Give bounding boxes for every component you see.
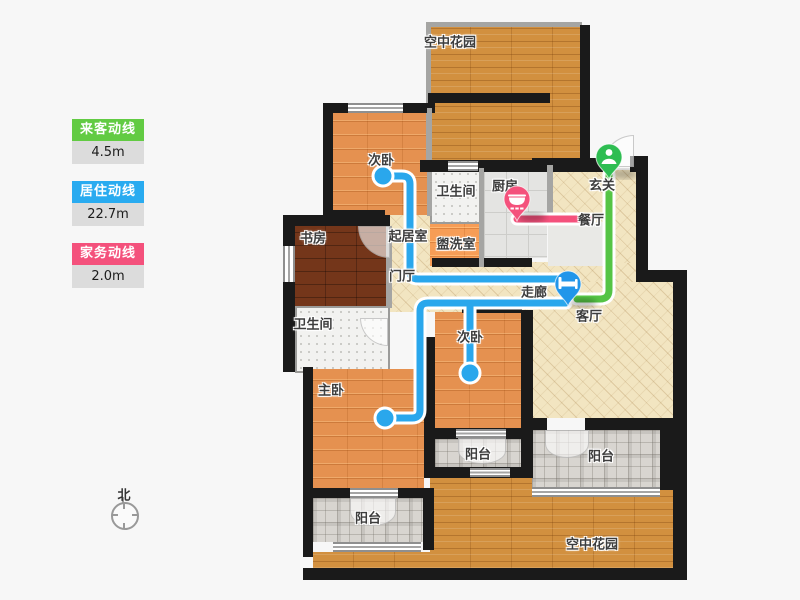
legend-living-title[interactable]: 居住动线 [72, 181, 144, 203]
room-label-balcony-center: 阳台 [465, 444, 491, 463]
wall [303, 568, 687, 580]
garden-rail-top [426, 22, 582, 27]
room-label-living: 客厅 [576, 306, 602, 325]
window [348, 103, 403, 113]
legend-item-visitor[interactable]: 来客动线 4.5m [72, 119, 144, 164]
wall [283, 215, 295, 372]
room-label-bedroom2-bottom: 次卧 [457, 327, 483, 346]
room-sky-garden-bottom-left [313, 552, 430, 568]
legend-visitor-title[interactable]: 来客动线 [72, 119, 144, 141]
legend-housework-title[interactable]: 家务动线 [72, 243, 144, 265]
room-label-study: 书房 [300, 228, 326, 247]
window [350, 488, 398, 498]
room-label-bath-left: 卫生间 [293, 314, 332, 333]
wall [547, 165, 553, 223]
room-label-balcony-right: 阳台 [588, 446, 614, 465]
legend-housework-value: 2.0m [72, 265, 144, 288]
entry-door-arc [602, 135, 634, 167]
dining-area-patch [548, 222, 606, 266]
room-label-garden-top: 空中花园 [424, 32, 476, 51]
legend-visitor-value: 4.5m [72, 141, 144, 164]
room-label-corridor: 走廊 [521, 282, 547, 301]
wall [285, 215, 390, 226]
wall [323, 103, 333, 225]
room-label-washroom: 盥洗室 [436, 234, 475, 253]
wall [462, 304, 522, 313]
room-label-balcony-left: 阳台 [355, 508, 381, 527]
window [470, 468, 510, 477]
room-label-kitchen: 厨房 [492, 176, 518, 195]
wall [660, 424, 673, 490]
wall [521, 310, 533, 478]
legend-living-value: 22.7m [72, 203, 144, 226]
wall [673, 272, 687, 580]
wall [424, 337, 435, 430]
compass-north-label: 北 [117, 485, 130, 504]
wall [303, 367, 313, 557]
wall [580, 25, 590, 165]
room-label-master: 主卧 [318, 380, 344, 399]
wall [423, 488, 434, 550]
room-label-dining: 餐厅 [578, 210, 604, 229]
window [283, 246, 295, 282]
window [448, 161, 478, 171]
window [456, 429, 506, 438]
room-living [521, 263, 636, 283]
room-label-foyer: 玄关 [589, 175, 615, 194]
wall [532, 158, 604, 172]
wall [636, 165, 648, 275]
wall [479, 168, 484, 267]
room-label-sitting: 起居室 [388, 226, 427, 245]
room-label-hall-entry: 门厅 [389, 266, 415, 285]
compass-icon [111, 502, 139, 530]
room-label-garden-bottom: 空中花园 [566, 534, 618, 553]
balcony-railing-left [333, 542, 421, 552]
room-label-bedroom2-top: 次卧 [368, 150, 394, 169]
room-living-main [521, 282, 673, 418]
legend-item-housework[interactable]: 家务动线 2.0m [72, 243, 144, 288]
room-label-bath-top: 卫生间 [436, 181, 475, 200]
legend-item-living[interactable]: 居住动线 22.7m [72, 181, 144, 226]
wall [428, 93, 550, 103]
floorplan-canvas: 空中花园 次卧 卫生间 厨房 玄关 餐厅 书房 起居室 盥洗室 门厅 走廊 客厅… [0, 0, 800, 600]
balcony-railing-right [532, 487, 660, 497]
living-balcony-door-arc [545, 430, 589, 458]
